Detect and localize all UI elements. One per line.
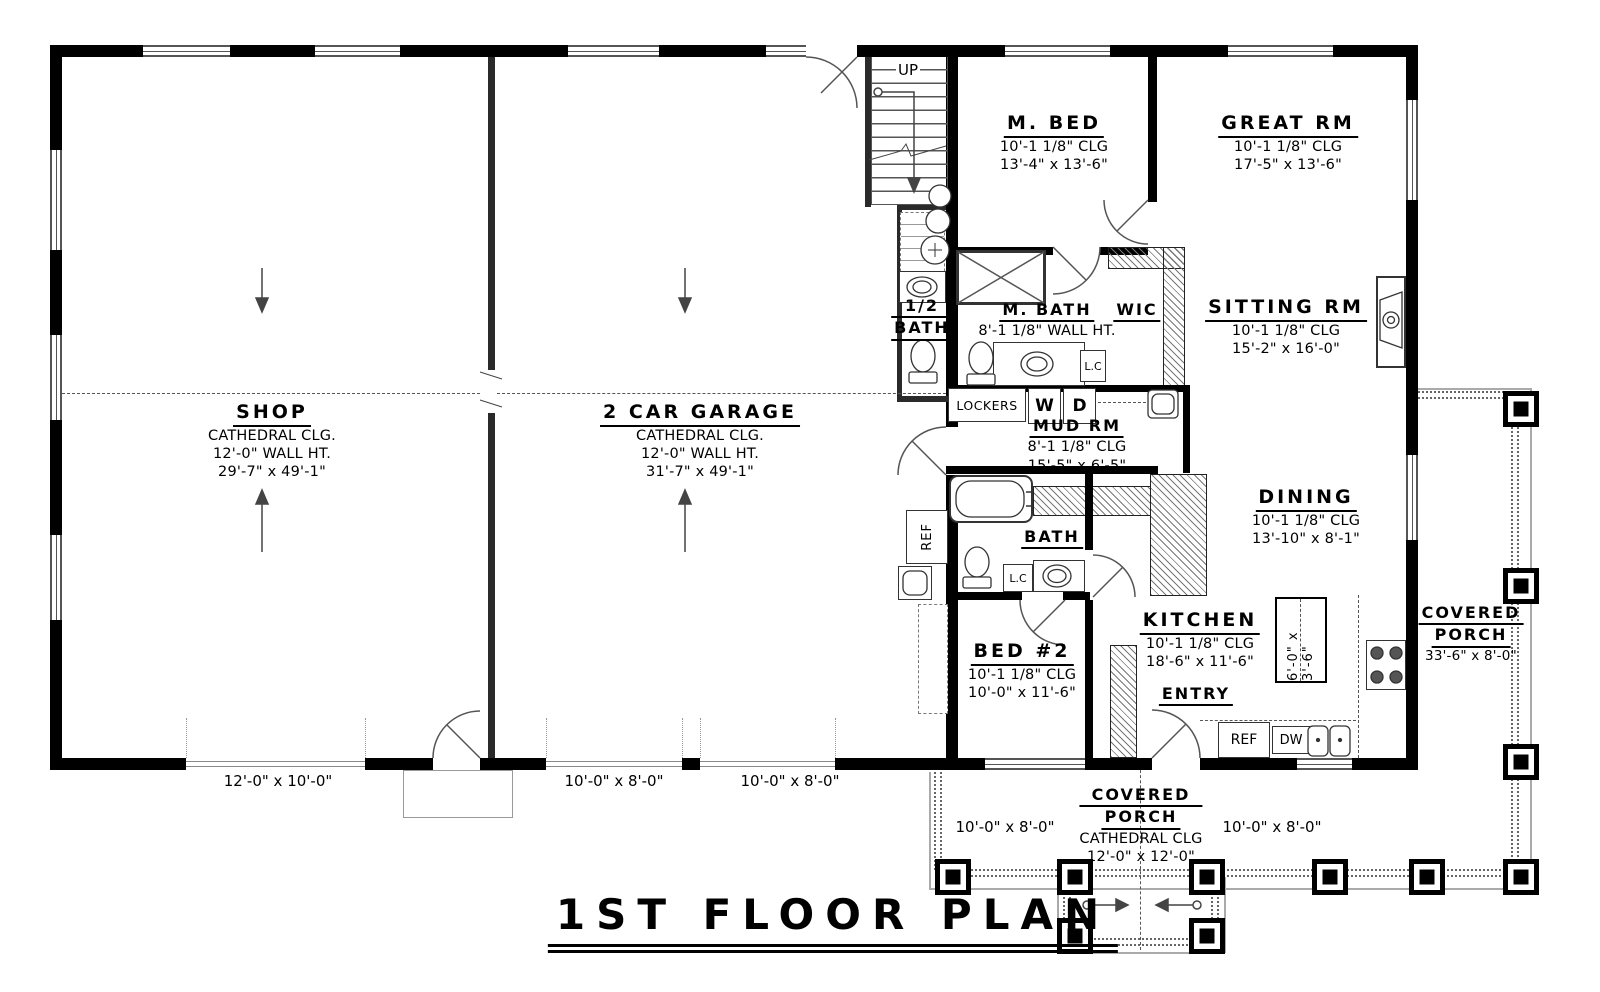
room-dim: 12'-0" WALL HT. bbox=[208, 445, 336, 463]
garage-door-dimension: 10'-0" x 8'-0" bbox=[564, 772, 663, 790]
room-name-shop: SHOP bbox=[233, 402, 311, 427]
room-name-porch-right-2: PORCH bbox=[1432, 626, 1511, 647]
shop-door-dimension: 12'-0" x 10'-0" bbox=[224, 772, 333, 790]
plan-title-text: 1ST FLOOR PLAN bbox=[548, 890, 1118, 947]
room-dim: 13'-10" x 8'-1" bbox=[1252, 530, 1360, 548]
room-name-mbed: M. BED bbox=[1004, 113, 1104, 138]
room-label-porch-bottom: COVERED PORCH CATHEDRAL CLG 12'-0" x 12'… bbox=[1079, 786, 1202, 866]
room-name-wic: WIC bbox=[1113, 301, 1160, 322]
room-label-wic: WIC bbox=[1113, 300, 1160, 322]
plan-title: 1ST FLOOR PLAN bbox=[548, 890, 1118, 953]
room-dim: 10'-1 1/8" CLG bbox=[1218, 138, 1358, 156]
room-dim: CATHEDRAL CLG. bbox=[600, 427, 800, 445]
room-dim: 10'-1 1/8" CLG bbox=[968, 666, 1076, 684]
room-label-mud: MUD RM 8'-1 1/8" CLG 15'-5" x 6'-5" bbox=[1028, 416, 1127, 475]
room-dim: 10'-1 1/8" CLG bbox=[1140, 635, 1260, 653]
plan-title-underline bbox=[548, 950, 1118, 953]
room-label-bath: BATH bbox=[1021, 527, 1083, 549]
room-name-porch-bottom-1: COVERED bbox=[1079, 786, 1202, 807]
room-name-halfbath-1: 1/2 bbox=[891, 297, 953, 318]
room-name-porch-bottom-2: PORCH bbox=[1102, 808, 1181, 829]
room-dim: 31'-7" x 49'-1" bbox=[600, 463, 800, 481]
room-label-garage: 2 CAR GARAGE CATHEDRAL CLG. 12'-0" WALL … bbox=[600, 402, 800, 481]
room-name-kitchen: KITCHEN bbox=[1140, 610, 1260, 635]
room-dim: 10'-1 1/8" CLG bbox=[1252, 512, 1360, 530]
room-dim: 8'-1 1/8" CLG bbox=[1028, 438, 1127, 456]
porch-bay-dimension: 10'-0" x 8'-0" bbox=[1222, 818, 1321, 836]
room-name-bath: BATH bbox=[1021, 528, 1083, 549]
room-dim: 15'-2" x 16'-0" bbox=[1205, 340, 1367, 358]
room-label-mbed: M. BED 10'-1 1/8" CLG 13'-4" x 13'-6" bbox=[1000, 113, 1108, 174]
room-name-garage: 2 CAR GARAGE bbox=[600, 402, 800, 427]
room-dim: 12'-0" WALL HT. bbox=[600, 445, 800, 463]
room-dim: CATHEDRAL CLG bbox=[1079, 830, 1202, 848]
room-label-shop: SHOP CATHEDRAL CLG. 12'-0" WALL HT. 29'-… bbox=[208, 402, 336, 481]
room-name-sitting: SITTING RM bbox=[1205, 297, 1367, 322]
room-label-bed2: BED #2 10'-1 1/8" CLG 10'-0" x 11'-6" bbox=[968, 641, 1076, 702]
floor-plan: UP L.C LOCKERS W D L.C REF REF DW 6'-0" … bbox=[0, 0, 1600, 992]
room-dim: 13'-4" x 13'-6" bbox=[1000, 156, 1108, 174]
room-name-halfbath-2: BATH bbox=[891, 319, 953, 340]
room-name-mud: MUD RM bbox=[1030, 417, 1124, 438]
room-dim: CATHEDRAL CLG. bbox=[208, 427, 336, 445]
room-label-entry: ENTRY bbox=[1159, 684, 1233, 706]
room-name-mbath: M. BATH bbox=[999, 301, 1094, 322]
room-label-dining: DINING 10'-1 1/8" CLG 13'-10" x 8'-1" bbox=[1252, 487, 1360, 548]
room-dim: 10'-0" x 11'-6" bbox=[968, 684, 1076, 702]
room-dim: 15'-5" x 6'-5" bbox=[1028, 457, 1127, 475]
room-dim: 33'-6" x 8'-0" bbox=[1419, 648, 1524, 665]
room-name-entry: ENTRY bbox=[1159, 685, 1233, 706]
room-label-great: GREAT RM 10'-1 1/8" CLG 17'-5" x 13'-6" bbox=[1218, 113, 1358, 174]
room-label-sitting: SITTING RM 10'-1 1/8" CLG 15'-2" x 16'-0… bbox=[1205, 297, 1367, 358]
room-dim: 17'-5" x 13'-6" bbox=[1218, 156, 1358, 174]
room-name-dining: DINING bbox=[1255, 487, 1356, 512]
room-name-great: GREAT RM bbox=[1218, 113, 1358, 138]
room-dim: 29'-7" x 49'-1" bbox=[208, 463, 336, 481]
room-dim: 18'-6" x 11'-6" bbox=[1140, 653, 1260, 671]
room-dim: 10'-1 1/8" CLG bbox=[1205, 322, 1367, 340]
room-name-bed2: BED #2 bbox=[970, 641, 1073, 666]
room-label-porch-right: COVERED PORCH 33'-6" x 8'-0" bbox=[1419, 604, 1524, 665]
room-label-halfbath: 1/2 BATH bbox=[891, 297, 953, 341]
porch-bay-dimension: 10'-0" x 8'-0" bbox=[955, 818, 1054, 836]
room-label-mbath: M. BATH 8'-1 1/8" WALL HT. bbox=[978, 300, 1115, 341]
garage-door-dimension: 10'-0" x 8'-0" bbox=[740, 772, 839, 790]
room-dim: 12'-0" x 12'-0" bbox=[1079, 848, 1202, 866]
room-dim: 10'-1 1/8" CLG bbox=[1000, 138, 1108, 156]
room-name-porch-right-1: COVERED bbox=[1419, 604, 1524, 625]
room-label-kitchen: KITCHEN 10'-1 1/8" CLG 18'-6" x 11'-6" bbox=[1140, 610, 1260, 671]
room-dim: 8'-1 1/8" WALL HT. bbox=[978, 322, 1115, 340]
